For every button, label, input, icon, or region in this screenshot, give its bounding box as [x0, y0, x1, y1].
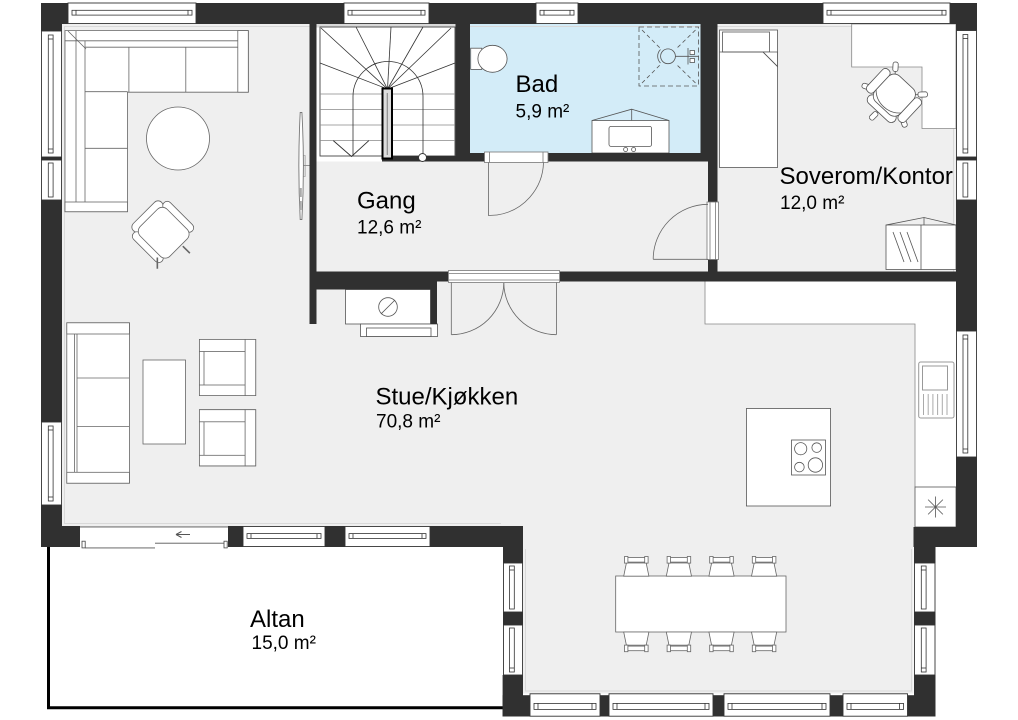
- svg-text:Soverom/Kontor: Soverom/Kontor: [780, 163, 953, 190]
- svg-text:5,9 m²: 5,9 m²: [516, 102, 570, 123]
- svg-text:Altan: Altan: [250, 606, 305, 633]
- svg-text:Gang: Gang: [357, 188, 416, 215]
- svg-text:Bad: Bad: [516, 71, 559, 98]
- svg-text:70,8 m²: 70,8 m²: [376, 412, 440, 433]
- svg-text:15,0 m²: 15,0 m²: [252, 633, 316, 654]
- svg-text:Stue/Kjøkken: Stue/Kjøkken: [376, 384, 519, 411]
- svg-text:12,0 m²: 12,0 m²: [780, 193, 844, 214]
- svg-text:12,6 m²: 12,6 m²: [357, 218, 421, 239]
